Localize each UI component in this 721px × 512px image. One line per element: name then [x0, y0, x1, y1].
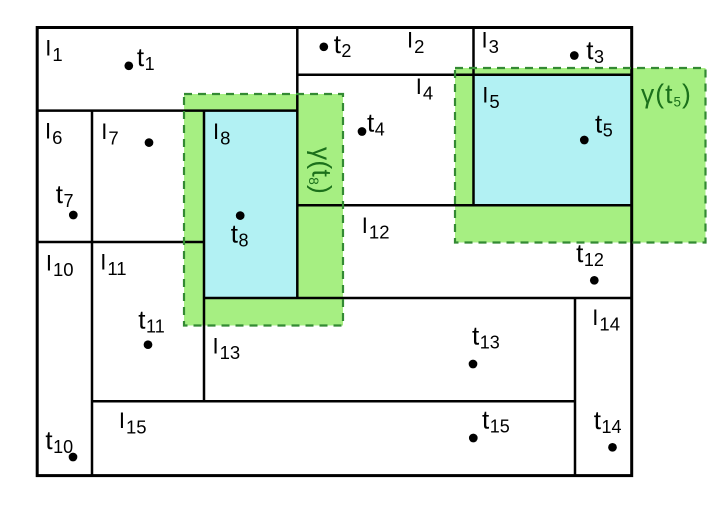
- svg-text:γ(t8): γ(t8): [306, 147, 337, 194]
- svg-text:γ(t5): γ(t5): [641, 79, 692, 110]
